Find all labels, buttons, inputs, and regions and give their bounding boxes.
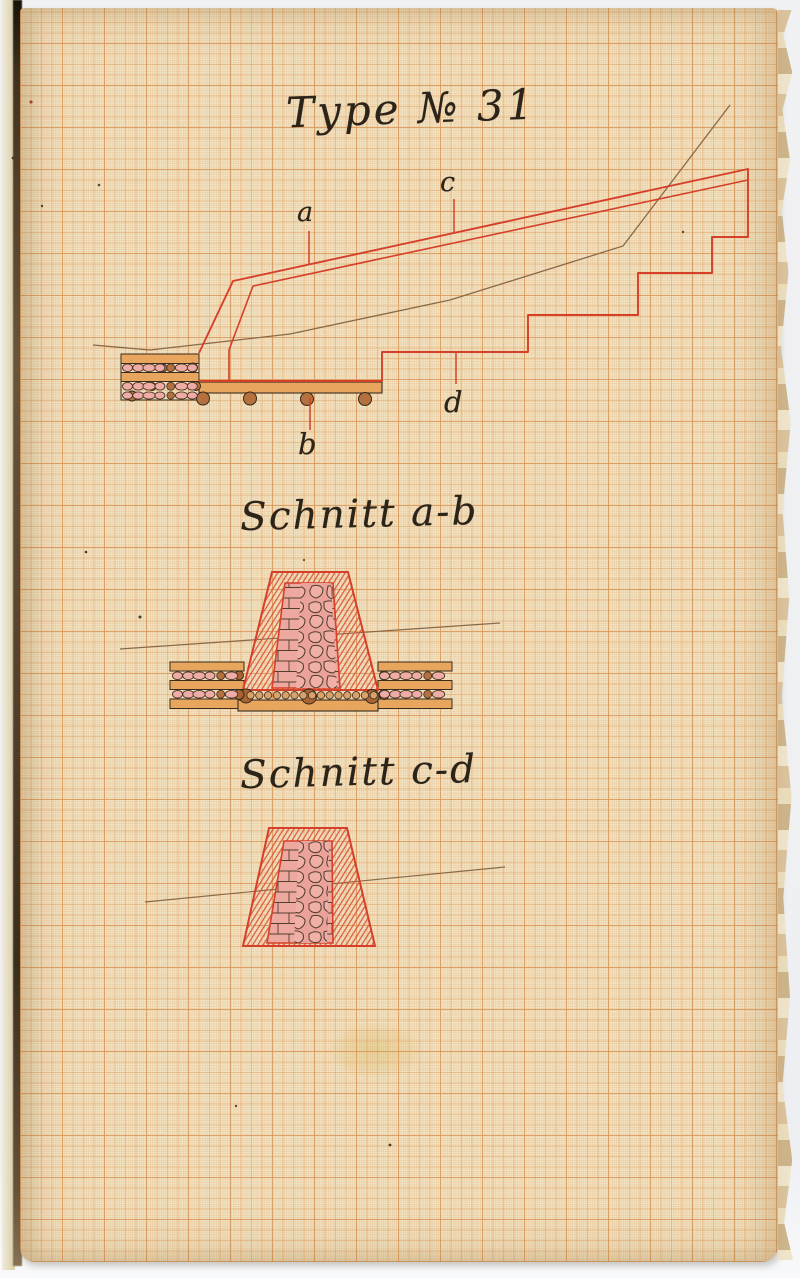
paper-stain <box>330 1023 420 1078</box>
page-edge-right <box>778 10 793 1260</box>
graph-paper-page <box>20 8 778 1262</box>
page-title: Type № 31 <box>285 80 537 138</box>
point-label-d: d <box>444 385 463 419</box>
section-cd-heading: Schnitt c-d <box>239 747 477 798</box>
point-label-c: c <box>440 167 455 198</box>
point-label-b: b <box>298 427 317 461</box>
point-label-a: a <box>297 197 313 228</box>
scanned-notebook-page: Type № 31 Schnitt a-b Schnitt c-d a c b … <box>0 0 800 1278</box>
section-ab-heading: Schnitt a-b <box>239 489 479 540</box>
